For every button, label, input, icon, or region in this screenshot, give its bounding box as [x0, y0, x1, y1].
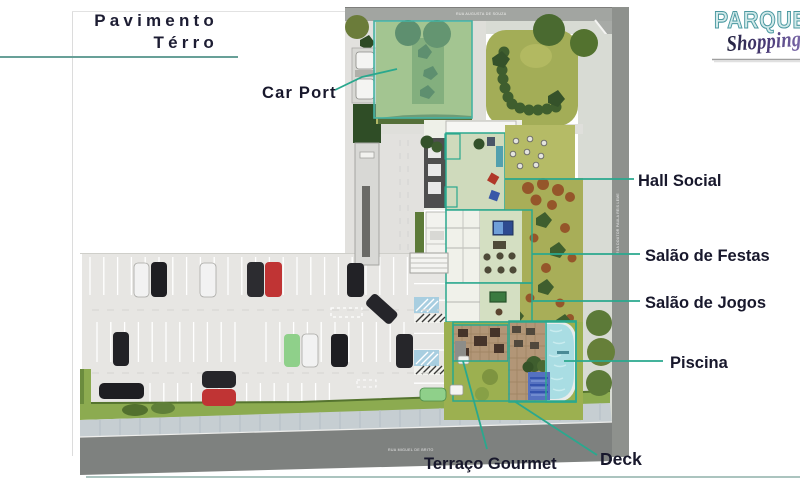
svg-text:Hall Social: Hall Social: [638, 172, 721, 190]
svg-text:Pavimento: Pavimento: [94, 11, 218, 30]
svg-text:Car Port: Car Port: [262, 84, 337, 102]
svg-text:RUA DOUTOR PAULA REIS LEME: RUA DOUTOR PAULA REIS LEME: [616, 193, 620, 254]
svg-text:Salão de Jogos: Salão de Jogos: [645, 294, 766, 312]
svg-text:Terraço Gourmet: Terraço Gourmet: [424, 455, 557, 473]
svg-text:Piscina: Piscina: [670, 354, 729, 372]
svg-text:Shopping: Shopping: [726, 27, 800, 56]
svg-text:RUA MIGUEL DE BRITO: RUA MIGUEL DE BRITO: [388, 448, 434, 452]
svg-text:RUA AUGUSTA DE SOUZA: RUA AUGUSTA DE SOUZA: [456, 12, 507, 16]
svg-text:Deck: Deck: [600, 449, 642, 469]
svg-text:Salão de Festas: Salão de Festas: [645, 247, 770, 265]
svg-text:Térro: Térro: [154, 33, 218, 52]
